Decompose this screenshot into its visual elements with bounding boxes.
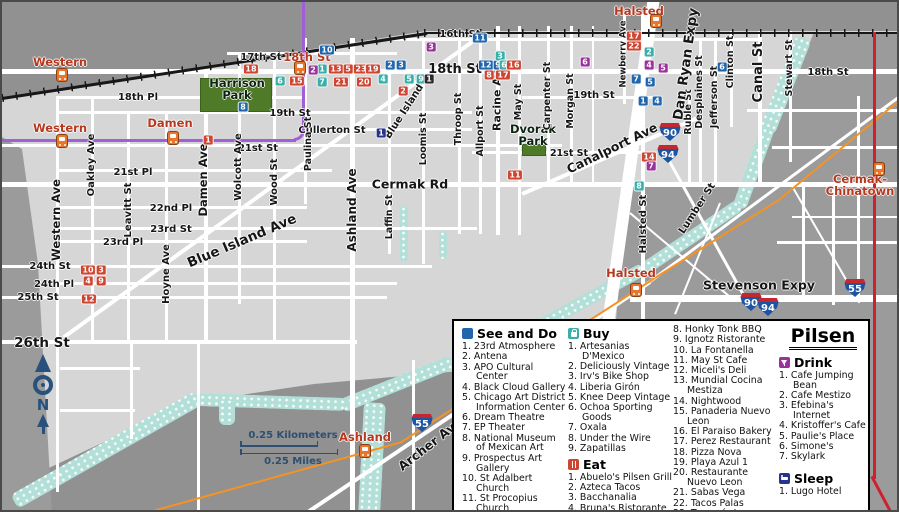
map-graphic bbox=[730, 31, 733, 127]
compass-north-arrow-icon bbox=[35, 354, 51, 372]
map-graphic bbox=[522, 96, 662, 99]
legend-item: 17. Perez Restaurant bbox=[673, 437, 774, 447]
scale-mi-bar bbox=[240, 453, 338, 455]
park-area bbox=[522, 144, 546, 156]
buy-title: Buy bbox=[583, 326, 610, 341]
poi-marker-eat-17: 17 bbox=[495, 70, 511, 81]
map-graphic bbox=[57, 169, 332, 172]
station-label: Western bbox=[33, 123, 87, 135]
poi-marker-buy-7: 7 bbox=[317, 77, 328, 88]
sleep-list: 1. Lugo Hotel bbox=[779, 487, 867, 497]
map-graphic bbox=[130, 343, 133, 439]
map-graphic bbox=[2, 296, 387, 299]
street-label: Hoyne Ave bbox=[162, 244, 172, 304]
map-graphic bbox=[521, 114, 702, 196]
map-graphic bbox=[439, 231, 447, 259]
poi-marker-sleep-1: 1 bbox=[376, 128, 387, 139]
see-and-do-list: 1. 23rd Atmosphere2. Antena3. APO Cultur… bbox=[462, 342, 566, 512]
eat-icon bbox=[568, 459, 579, 470]
street-label: Oakley Ave bbox=[87, 134, 97, 197]
street-label: Blue Island bbox=[384, 83, 427, 141]
pink-line bbox=[2, 139, 296, 142]
park-label: Dvorak Park bbox=[510, 124, 556, 148]
map-graphic bbox=[60, 409, 135, 412]
street-label: Clinton St bbox=[726, 36, 736, 89]
legend-item: 3. APO Cultural Center bbox=[462, 363, 566, 383]
compass-rose: N bbox=[26, 354, 60, 446]
map-graphic bbox=[62, 40, 473, 339]
poi-marker-eat-11: 11 bbox=[507, 170, 523, 181]
scale-bar: 0.25 Kilometers 0.25 Miles bbox=[238, 430, 348, 467]
poi-marker-buy-5: 5 bbox=[404, 74, 415, 85]
street-label: 19th St bbox=[269, 109, 310, 119]
map-graphic bbox=[496, 26, 500, 235]
poi-marker-eat-23: 23 bbox=[353, 64, 369, 75]
drink-title: Drink bbox=[794, 355, 832, 370]
poi-marker-see-9: 9 bbox=[493, 60, 504, 71]
poi-marker-eat-19: 19 bbox=[365, 64, 381, 75]
map-graphic bbox=[388, 69, 391, 254]
poi-marker-eat-1: 1 bbox=[203, 135, 214, 146]
poi-marker-dark-1: 1 bbox=[424, 74, 435, 85]
map-graphic bbox=[2, 340, 357, 344]
station-label: Damen bbox=[147, 118, 192, 130]
map-graphic bbox=[547, 26, 550, 186]
map-graphic bbox=[472, 151, 642, 154]
poi-marker-see-11: 11 bbox=[472, 33, 488, 44]
street-label: 19th St bbox=[573, 91, 614, 101]
poi-marker-see-4: 4 bbox=[652, 96, 663, 107]
map-graphic: 90 bbox=[660, 127, 681, 140]
street-label: Laffin St bbox=[385, 195, 395, 240]
legend-section-sleep: Sleep bbox=[779, 471, 867, 486]
legend-item: 8. National Museum of Mexican Art bbox=[462, 434, 566, 454]
street-label: Canal St bbox=[752, 42, 766, 103]
street-label: Morgan St bbox=[566, 73, 576, 128]
buy-icon bbox=[568, 328, 579, 339]
poi-marker-see-12: 12 bbox=[478, 60, 494, 71]
map-graphic bbox=[570, 26, 573, 186]
legend-column-4: Pilsen Drink 1. Cafe Jumping Bean2. Cafe… bbox=[779, 325, 867, 512]
poi-marker-see-7: 7 bbox=[631, 74, 642, 85]
poi-marker-eat-12: 12 bbox=[81, 294, 97, 305]
poi-marker-eat-17: 17 bbox=[626, 31, 642, 42]
poi-marker-drink-5: 5 bbox=[658, 63, 669, 74]
poi-marker-see-6: 6 bbox=[717, 62, 728, 73]
legend-item: 7. Oxala bbox=[568, 423, 672, 433]
street-label: Desplaines St bbox=[695, 55, 705, 128]
poi-marker-eat-20: 20 bbox=[356, 77, 372, 88]
poi-marker-drink-3: 3 bbox=[426, 42, 437, 53]
train-station-icon bbox=[167, 131, 179, 145]
legend-item: 3. Efebina's Internet bbox=[779, 401, 867, 421]
legend-item: 21. Sabas Vega bbox=[673, 488, 774, 498]
street-label: Canalport Ave bbox=[565, 120, 660, 175]
legend-item: 3. Bacchanalia bbox=[568, 493, 672, 503]
drink-list: 1. Cafe Jumping Bean2. Cafe Mestizo3. Ef… bbox=[779, 371, 867, 462]
eat-list-part1: 1. Abuelo's Pilsen Grill2. Azteca Tacos3… bbox=[568, 473, 672, 512]
legend-column-2: Buy 1. Artesanias D'Mexico2. Deliciously… bbox=[568, 325, 672, 512]
legend-section-see-and-do: See and Do bbox=[462, 326, 566, 341]
map-graphic bbox=[714, 38, 717, 185]
map-graphic bbox=[390, 38, 762, 41]
compass-north-label: N bbox=[26, 398, 60, 412]
poi-marker-buy-9: 9 bbox=[416, 74, 427, 85]
map-graphic: Pilsen bbox=[789, 325, 858, 350]
poi-marker-eat-3: 3 bbox=[96, 265, 107, 276]
poi-marker-see-1: 1 bbox=[638, 96, 649, 107]
legend-item: 13. Mundial Cocina Mestiza bbox=[673, 376, 774, 396]
street-label: Western Ave bbox=[51, 179, 63, 261]
poi-marker-see-5: 5 bbox=[645, 77, 656, 88]
legend-item: 7. Skylark bbox=[779, 452, 867, 462]
legend-item: 1. Artesanias D'Mexico bbox=[568, 342, 672, 362]
legend-item: 22. Tacos Palas bbox=[673, 499, 774, 509]
legend-panel: See and Do 1. 23rd Atmosphere2. Antena3.… bbox=[452, 319, 870, 512]
street-label: Wolcott Ave bbox=[234, 133, 244, 201]
poi-marker-see-3: 3 bbox=[396, 60, 407, 71]
street-label: Blue Island Ave bbox=[185, 212, 298, 271]
street-label: Allport St bbox=[476, 105, 486, 156]
map-graphic bbox=[758, 31, 762, 185]
map-graphic bbox=[400, 206, 408, 262]
legend-item: 10. St Adalbert Church bbox=[462, 474, 566, 494]
legend-item: 4. Liberia Girón bbox=[568, 383, 672, 393]
legend-item: 9. Zapatillas bbox=[568, 444, 672, 454]
map-graphic bbox=[304, 38, 307, 204]
street-label: Leavitt St bbox=[124, 183, 134, 238]
map-graphic bbox=[592, 26, 594, 184]
scale-km-bar bbox=[240, 445, 318, 447]
legend-item: 11. St Procopius Church bbox=[462, 494, 566, 512]
scale-miles-label: 0.25 Miles bbox=[238, 456, 348, 467]
street-label: 23rd Pl bbox=[103, 238, 143, 248]
legend-item: 9. Ignotz Ristorante bbox=[673, 335, 774, 345]
street-label: Loomis St bbox=[419, 113, 429, 166]
legend-item: 9. Prospectus Art Gallery bbox=[462, 454, 566, 474]
poi-marker-see-2: 2 bbox=[385, 60, 396, 71]
compass-pointer-icon bbox=[37, 414, 49, 427]
street-label: Wood St bbox=[270, 158, 280, 205]
park-label: Harrison Park bbox=[209, 78, 265, 102]
poi-marker-eat-14: 14 bbox=[641, 152, 657, 163]
map-graphic bbox=[57, 206, 307, 209]
map-graphic bbox=[57, 282, 397, 285]
poi-marker-drink-7: 7 bbox=[646, 161, 657, 172]
street-label: 21st St bbox=[238, 144, 278, 154]
poi-marker-eat-22: 22 bbox=[626, 41, 642, 52]
poi-marker-eat-4: 4 bbox=[83, 276, 94, 287]
street-label: 22nd Pl bbox=[150, 204, 192, 214]
map-graphic bbox=[57, 111, 472, 114]
poi-marker-drink-4: 4 bbox=[644, 60, 655, 71]
poi-marker-buy-6: 6 bbox=[499, 60, 510, 71]
map-graphic bbox=[302, 128, 472, 131]
legend-item: 1. Lugo Hotel bbox=[779, 487, 867, 497]
map-graphic: 94 bbox=[658, 149, 679, 162]
map-graphic bbox=[658, 145, 679, 149]
legend-item: 15. Panaderia Nuevo Leon bbox=[673, 407, 774, 427]
map-graphic bbox=[57, 96, 307, 99]
station-label: 18th St bbox=[283, 52, 330, 64]
legend-item: 2. Antena bbox=[462, 352, 566, 362]
legend-item: 20. Restaurante Nuevo Leon bbox=[673, 468, 774, 488]
street-label: Throop St bbox=[454, 93, 464, 145]
interstate-94-shield-icon: 94 bbox=[658, 145, 679, 163]
legend-item: 14. Nightwood bbox=[673, 397, 774, 407]
poi-marker-buy-3: 3 bbox=[495, 51, 506, 62]
street-label: Cermak Rd bbox=[372, 178, 449, 191]
poi-marker-buy-6: 6 bbox=[275, 76, 286, 87]
map-graphic bbox=[57, 227, 477, 230]
legend-item: 7. EP Theater bbox=[462, 423, 566, 433]
poi-marker-eat-9: 9 bbox=[96, 276, 107, 287]
eat-list-part2: 8. Honky Tonk BBQ9. Ignotz Ristorante10.… bbox=[673, 325, 774, 512]
interstate-90-shield-icon: 90 bbox=[660, 123, 681, 141]
poi-marker-eat-8: 8 bbox=[484, 70, 495, 81]
park-area bbox=[200, 78, 272, 112]
legend-section-eat: Eat bbox=[568, 457, 672, 472]
eat-title: Eat bbox=[583, 457, 606, 472]
legend-column-3: 8. Honky Tonk BBQ9. Ignotz Ristorante10.… bbox=[673, 325, 774, 512]
buy-list: 1. Artesanias D'Mexico2. Deliciously Vin… bbox=[568, 342, 672, 454]
poi-marker-buy-2: 2 bbox=[644, 47, 655, 58]
poi-marker-drink-2: 2 bbox=[308, 65, 319, 76]
map-graphic bbox=[422, 38, 425, 264]
map-graphic bbox=[2, 265, 432, 268]
street-label: 21st St bbox=[550, 149, 588, 159]
legend-item: 1. Cafe Jumping Bean bbox=[779, 371, 867, 391]
street-label: Damen Ave bbox=[198, 143, 210, 216]
map-graphic bbox=[2, 144, 562, 147]
legend-item: 18. Pizza Nova bbox=[673, 448, 774, 458]
poi-marker-eat-5: 5 bbox=[343, 64, 354, 75]
see-and-do-title: See and Do bbox=[477, 326, 557, 341]
street-label: Paulina St bbox=[304, 117, 314, 171]
map-graphic bbox=[60, 367, 140, 370]
map-graphic bbox=[91, 96, 94, 344]
map-graphic bbox=[127, 111, 130, 344]
street-label: Racine Ave bbox=[491, 63, 502, 131]
street-label: 23rd St bbox=[150, 225, 191, 235]
street-label: May St bbox=[514, 84, 524, 120]
poi-marker-eat-16: 16 bbox=[506, 60, 522, 71]
legend-item: 10. La Fontanella bbox=[673, 346, 774, 356]
map-graphic bbox=[479, 38, 482, 234]
see-and-do-icon bbox=[462, 328, 473, 339]
street-label: 18th Pl bbox=[118, 93, 158, 103]
legend-item: 4. Black Cloud Gallery bbox=[462, 383, 566, 393]
legend-item: 6. Ochoa Sporting Goods bbox=[568, 403, 672, 423]
pink-line-curve bbox=[294, 125, 305, 141]
map-graphic bbox=[458, 38, 461, 234]
poi-marker-eat-15: 15 bbox=[289, 76, 305, 87]
map-graphic bbox=[518, 26, 521, 235]
street-label: Carpenter St bbox=[543, 62, 553, 130]
train-station-icon bbox=[294, 61, 306, 75]
map-graphic bbox=[779, 497, 867, 510]
map-graphic bbox=[238, 52, 241, 304]
legend-item: 4. Kristoffer's Cafe bbox=[779, 421, 867, 431]
legend-section-drink: Drink bbox=[779, 355, 867, 370]
legend-section-buy: Buy bbox=[568, 326, 672, 341]
poi-marker-eat-10: 10 bbox=[80, 265, 96, 276]
poi-marker-eat-18: 18 bbox=[243, 64, 259, 75]
map-graphic bbox=[165, 111, 168, 344]
neighborhood-title: Pilsen bbox=[779, 325, 867, 347]
train-station-icon bbox=[56, 134, 68, 148]
street-label: Jefferson St bbox=[710, 66, 720, 128]
street-label: 21st Pl bbox=[114, 168, 153, 178]
poi-marker-buy-1: 1 bbox=[317, 64, 328, 75]
sleep-title: Sleep bbox=[794, 471, 833, 486]
poi-marker-eat-21: 21 bbox=[333, 77, 349, 88]
poi-marker-buy-4: 4 bbox=[378, 74, 389, 85]
pilsen-neighborhood-map: Harrison ParkDvorak Park16th St17th St18… bbox=[0, 0, 899, 512]
scale-kilometers-label: 0.25 Kilometers bbox=[238, 430, 348, 441]
poi-marker-drink-6: 6 bbox=[580, 57, 591, 68]
legend-item: 5. Chicago Art District Information Cent… bbox=[462, 393, 566, 413]
drink-icon bbox=[779, 357, 790, 368]
legend-item: 4. Bruna's Ristorante bbox=[568, 504, 672, 512]
map-graphic bbox=[688, 91, 691, 185]
street-label: Cullerton St bbox=[298, 126, 365, 136]
poi-marker-eat-2: 2 bbox=[398, 86, 409, 97]
street-label: Ruble St bbox=[684, 89, 694, 134]
legend-item: 3. Irv's Bike Shop bbox=[568, 372, 672, 382]
street-label: 16th St bbox=[439, 30, 480, 40]
sleep-icon bbox=[779, 473, 790, 484]
compass-stem bbox=[42, 427, 45, 434]
street-label: 24th Pl bbox=[34, 280, 74, 290]
street-label: Ashland Ave bbox=[346, 168, 358, 251]
map-graphic bbox=[273, 52, 276, 344]
map-graphic bbox=[57, 240, 307, 243]
poi-marker-eat-13: 13 bbox=[328, 64, 344, 75]
compass-circle-icon bbox=[33, 375, 53, 395]
poi-marker-see-8: 8 bbox=[238, 102, 249, 113]
legend-item: 8. Under the Wire bbox=[568, 434, 672, 444]
legend-column-1: See and Do 1. 23rd Atmosphere2. Antena3.… bbox=[462, 325, 566, 512]
street-label: 18th St bbox=[428, 63, 482, 77]
map-graphic bbox=[699, 38, 702, 185]
map-graphic bbox=[660, 123, 681, 127]
map-graphic bbox=[204, 69, 208, 344]
map-graphic bbox=[779, 463, 867, 470]
